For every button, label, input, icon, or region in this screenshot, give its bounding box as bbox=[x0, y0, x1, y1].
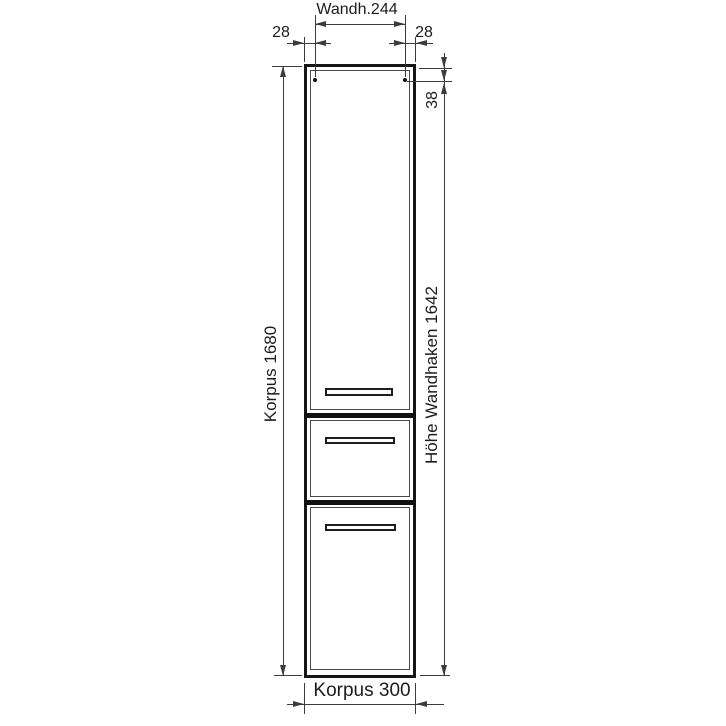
technical-drawing-canvas: Wandh.244 28 28 Korpus 1680 38 Höhe Wand… bbox=[0, 0, 726, 726]
top-door-handle bbox=[325, 388, 393, 396]
arrowhead-right-icon bbox=[394, 21, 405, 27]
dim-label-korpus-width: Korpus 300 bbox=[313, 680, 410, 702]
arrowhead-right-icon bbox=[394, 40, 405, 46]
dim-label-hook-height: Höhe Wandhaken 1642 bbox=[422, 286, 442, 464]
extension-line-cabinet-left bbox=[304, 37, 305, 62]
extension-line-bottom-left bbox=[274, 675, 302, 676]
bottom-door-panel bbox=[310, 507, 410, 670]
dim-label-korpus-height: Korpus 1680 bbox=[261, 326, 281, 422]
extension-line-bottom-right bbox=[420, 675, 450, 676]
extension-line-top-left bbox=[272, 66, 302, 67]
wall-hook-left-dot bbox=[313, 78, 317, 82]
arrowhead-left-icon bbox=[416, 40, 427, 46]
arrowhead-right-icon bbox=[293, 40, 304, 46]
dim-label-hook-offset: 38 bbox=[424, 91, 442, 109]
drawer-front-panel bbox=[310, 420, 410, 497]
separator-bottom bbox=[304, 500, 416, 505]
arrowhead-left-icon bbox=[315, 40, 326, 46]
extension-line-top-right bbox=[419, 68, 452, 69]
arrowhead-left-icon bbox=[315, 21, 326, 27]
arrowhead-left-icon bbox=[416, 701, 427, 707]
dim-line-korpus-height bbox=[283, 66, 284, 676]
dim-label-wandhaken-width: Wandh.244 bbox=[316, 1, 397, 19]
separator-top bbox=[304, 413, 416, 418]
extension-line-hook-level bbox=[407, 81, 452, 82]
arrowhead-down-icon bbox=[441, 70, 447, 81]
dim-line-hook-height bbox=[444, 53, 445, 676]
top-door-panel bbox=[310, 70, 410, 410]
extension-line-bottom-corner-left bbox=[304, 683, 305, 714]
bottom-door-handle bbox=[325, 524, 396, 531]
arrowhead-down-icon bbox=[441, 57, 447, 68]
extension-line-hook-right bbox=[405, 15, 406, 77]
dim-label-offset-left: 28 bbox=[272, 24, 290, 42]
arrowhead-right-icon bbox=[293, 701, 304, 707]
drawer-handle bbox=[325, 437, 395, 444]
extension-line-bottom-corner-right bbox=[415, 683, 416, 714]
arrowhead-up-icon bbox=[280, 66, 286, 77]
dim-line-wandhaken-width bbox=[315, 24, 405, 25]
